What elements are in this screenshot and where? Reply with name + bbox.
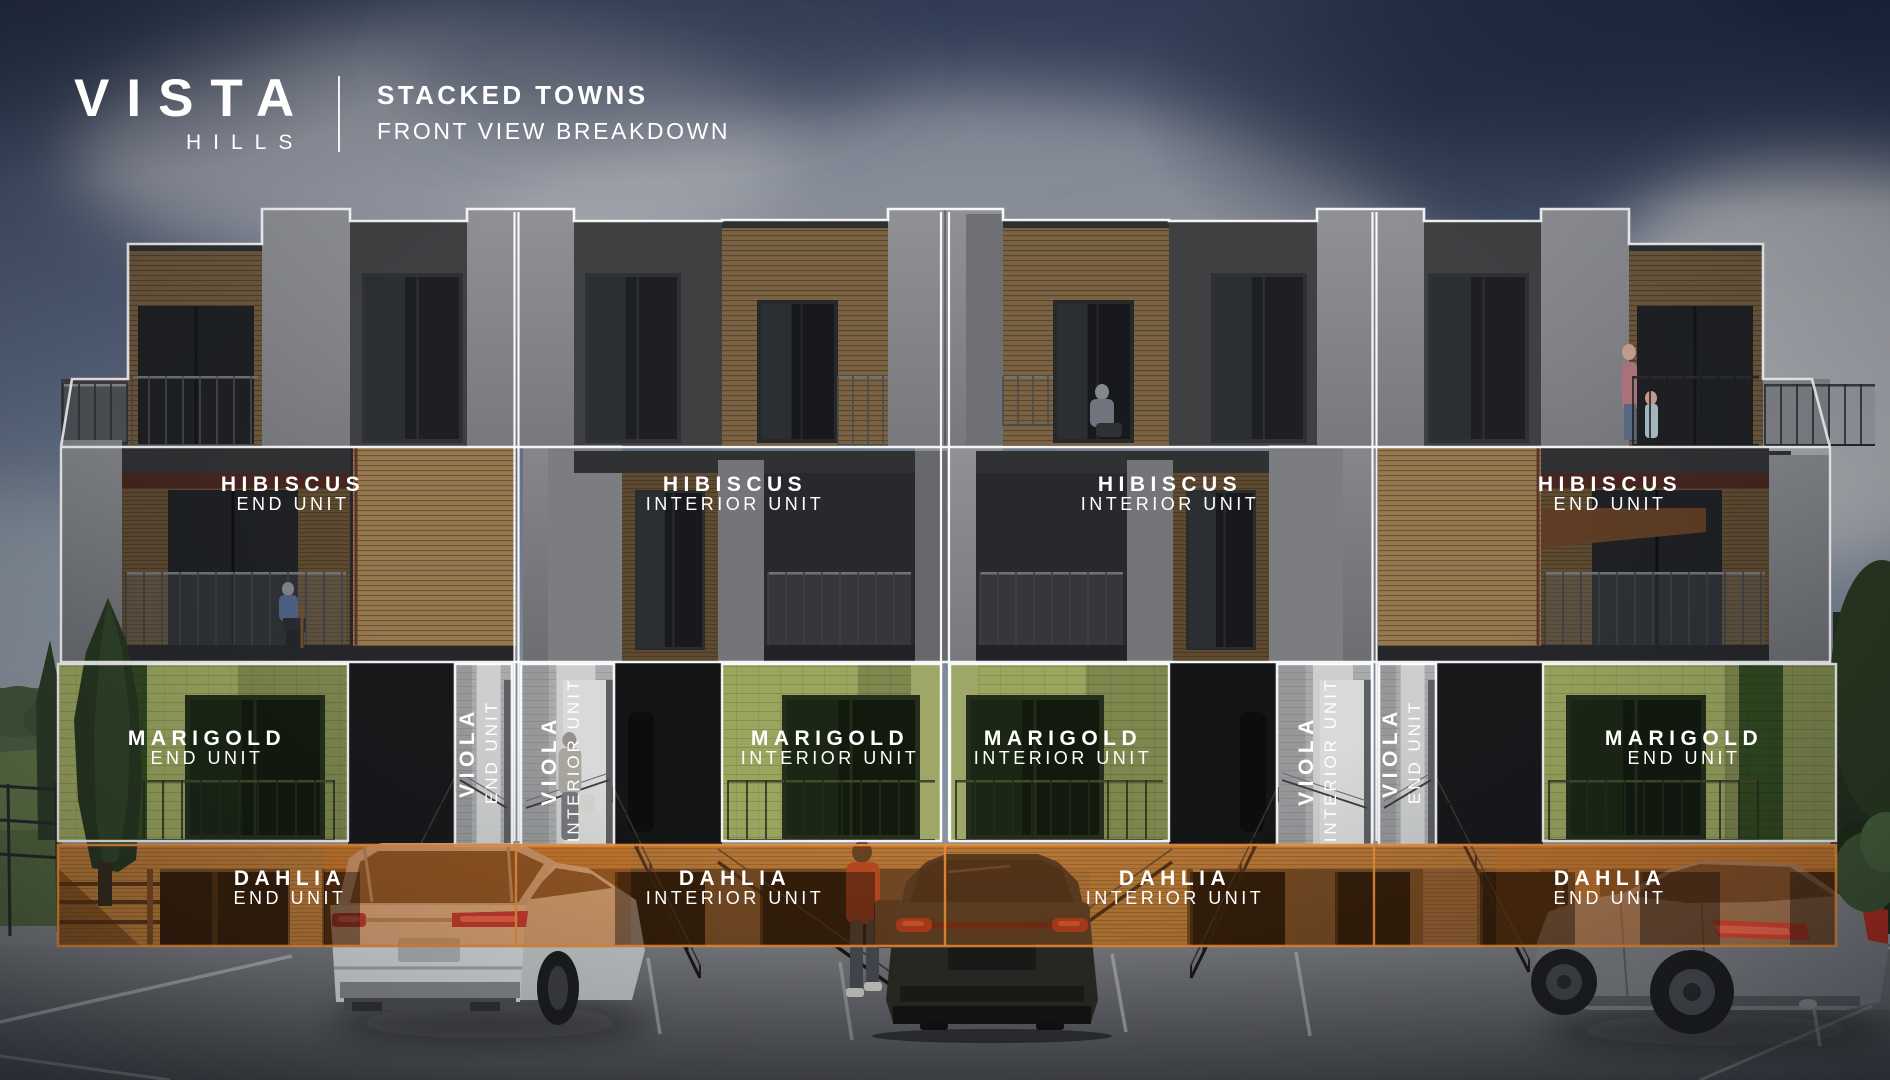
- svg-text:MARIGOLD: MARIGOLD: [751, 727, 909, 750]
- svg-text:HIBISCUS: HIBISCUS: [1538, 473, 1682, 496]
- svg-text:VIOLA: VIOLA: [456, 706, 479, 798]
- svg-text:INTERIOR UNIT: INTERIOR UNIT: [974, 748, 1153, 768]
- svg-text:MARIGOLD: MARIGOLD: [1605, 727, 1763, 750]
- svg-text:HIBISCUS: HIBISCUS: [221, 473, 365, 496]
- svg-text:FRONT VIEW BREAKDOWN: FRONT VIEW BREAKDOWN: [377, 118, 730, 144]
- svg-text:VIOLA: VIOLA: [1379, 706, 1402, 798]
- svg-text:END UNIT: END UNIT: [1554, 494, 1667, 514]
- svg-text:DAHLIA: DAHLIA: [1119, 867, 1231, 890]
- svg-text:DAHLIA: DAHLIA: [679, 867, 791, 890]
- svg-text:END UNIT: END UNIT: [237, 494, 350, 514]
- svg-text:INTERIOR UNIT: INTERIOR UNIT: [741, 748, 920, 768]
- svg-text:INTERIOR UNIT: INTERIOR UNIT: [1321, 678, 1340, 843]
- svg-text:END UNIT: END UNIT: [151, 748, 264, 768]
- svg-text:END UNIT: END UNIT: [1554, 888, 1667, 908]
- svg-text:INTERIOR UNIT: INTERIOR UNIT: [564, 678, 583, 843]
- svg-text:HIBISCUS: HIBISCUS: [663, 473, 807, 496]
- svg-text:DAHLIA: DAHLIA: [234, 867, 346, 890]
- svg-text:VISTA: VISTA: [74, 69, 311, 128]
- svg-text:HILLS: HILLS: [186, 131, 304, 154]
- svg-text:INTERIOR UNIT: INTERIOR UNIT: [646, 494, 825, 514]
- svg-text:INTERIOR UNIT: INTERIOR UNIT: [1081, 494, 1260, 514]
- svg-text:INTERIOR UNIT: INTERIOR UNIT: [1086, 888, 1265, 908]
- svg-text:STACKED TOWNS: STACKED TOWNS: [377, 80, 648, 110]
- svg-text:DAHLIA: DAHLIA: [1554, 867, 1666, 890]
- svg-text:MARIGOLD: MARIGOLD: [984, 727, 1142, 750]
- svg-text:HIBISCUS: HIBISCUS: [1098, 473, 1242, 496]
- svg-text:INTERIOR UNIT: INTERIOR UNIT: [646, 888, 825, 908]
- svg-text:END UNIT: END UNIT: [1628, 748, 1741, 768]
- svg-text:VIOLA: VIOLA: [1295, 714, 1318, 806]
- svg-text:END UNIT: END UNIT: [482, 700, 501, 804]
- svg-text:END UNIT: END UNIT: [1405, 700, 1424, 804]
- svg-text:END UNIT: END UNIT: [234, 888, 347, 908]
- svg-text:MARIGOLD: MARIGOLD: [128, 727, 286, 750]
- svg-text:VIOLA: VIOLA: [538, 714, 561, 806]
